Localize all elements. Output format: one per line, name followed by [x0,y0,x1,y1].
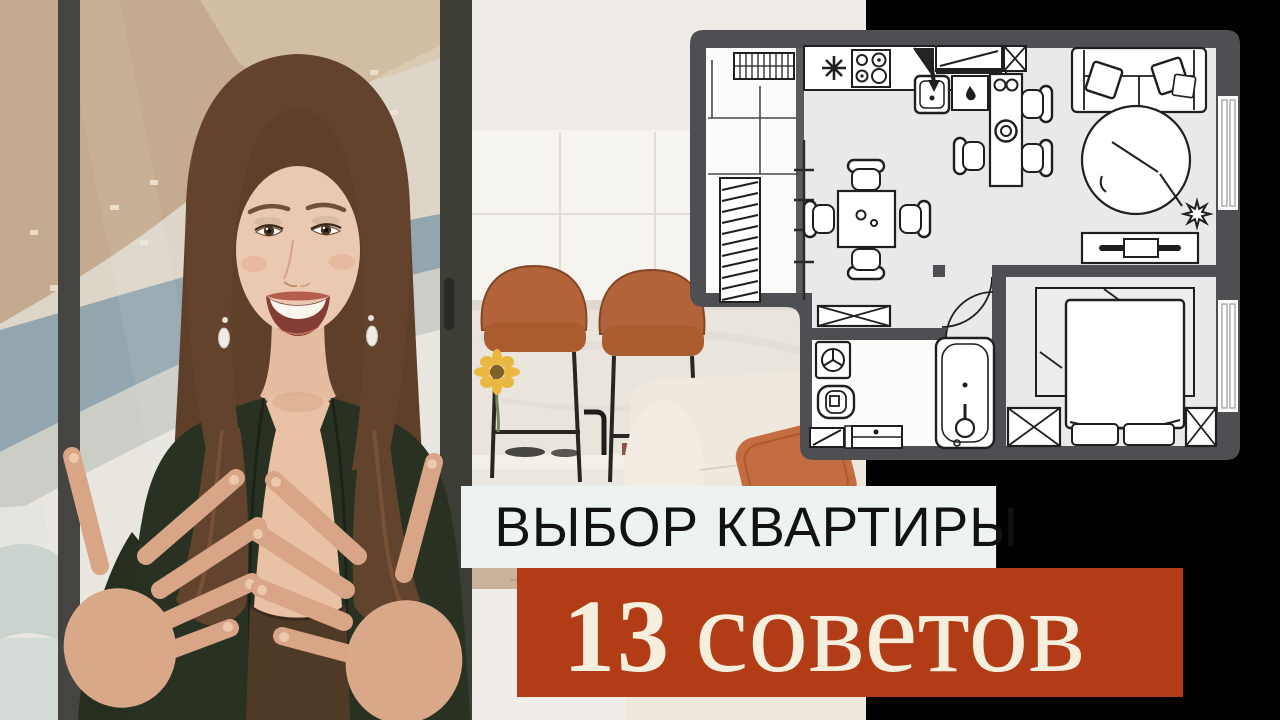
tips-count: 13 [563,574,671,700]
fridge-icon [1004,46,1026,71]
wardrobe-icon [1008,408,1060,446]
bathtub-icon [936,338,994,448]
window-icon [1218,300,1238,412]
stove-icon [852,50,890,87]
dining-chair-icon [848,249,884,279]
balcony [706,48,814,302]
title-banner: ВЫБОР КВАРТИРЫ [461,486,996,568]
dining-table-icon [838,191,895,247]
pillow-icon [1124,424,1174,445]
bar-counter-icon [990,74,1022,186]
subtitle-banner: 13 советов [517,568,1183,697]
pillow-icon [1072,424,1118,445]
bar-stool-icon [1022,86,1052,122]
title-text: ВЫБОР КВАРТИРЫ [494,495,1018,558]
vanity-icon [810,426,902,448]
window-icon [1218,96,1238,210]
upper-cabinet-icon [936,46,1002,74]
bar-stool-icon [1022,140,1052,176]
toilet-icon [818,386,854,418]
bedroom [1008,288,1216,446]
dishwasher-icon [952,76,988,110]
rug-icon [1082,106,1190,214]
pillow-icon [1172,74,1196,98]
floor-plan [690,25,1242,465]
dining-chair-icon [848,160,884,190]
washing-machine-icon [816,342,850,378]
dining-chair-icon [900,201,930,237]
bar-stool-icon [954,138,984,174]
tips-word: советов [695,568,1085,694]
dining-chair-icon [804,201,834,237]
plant-icon [1184,201,1210,227]
video-thumbnail: ВЫБОР КВАРТИРЫ 13 советов [0,0,1280,720]
tv-console-icon [1082,233,1198,263]
wardrobe-icon [1186,408,1216,446]
bed-icon [1066,300,1184,428]
hall-wardrobe-icon [818,306,890,326]
